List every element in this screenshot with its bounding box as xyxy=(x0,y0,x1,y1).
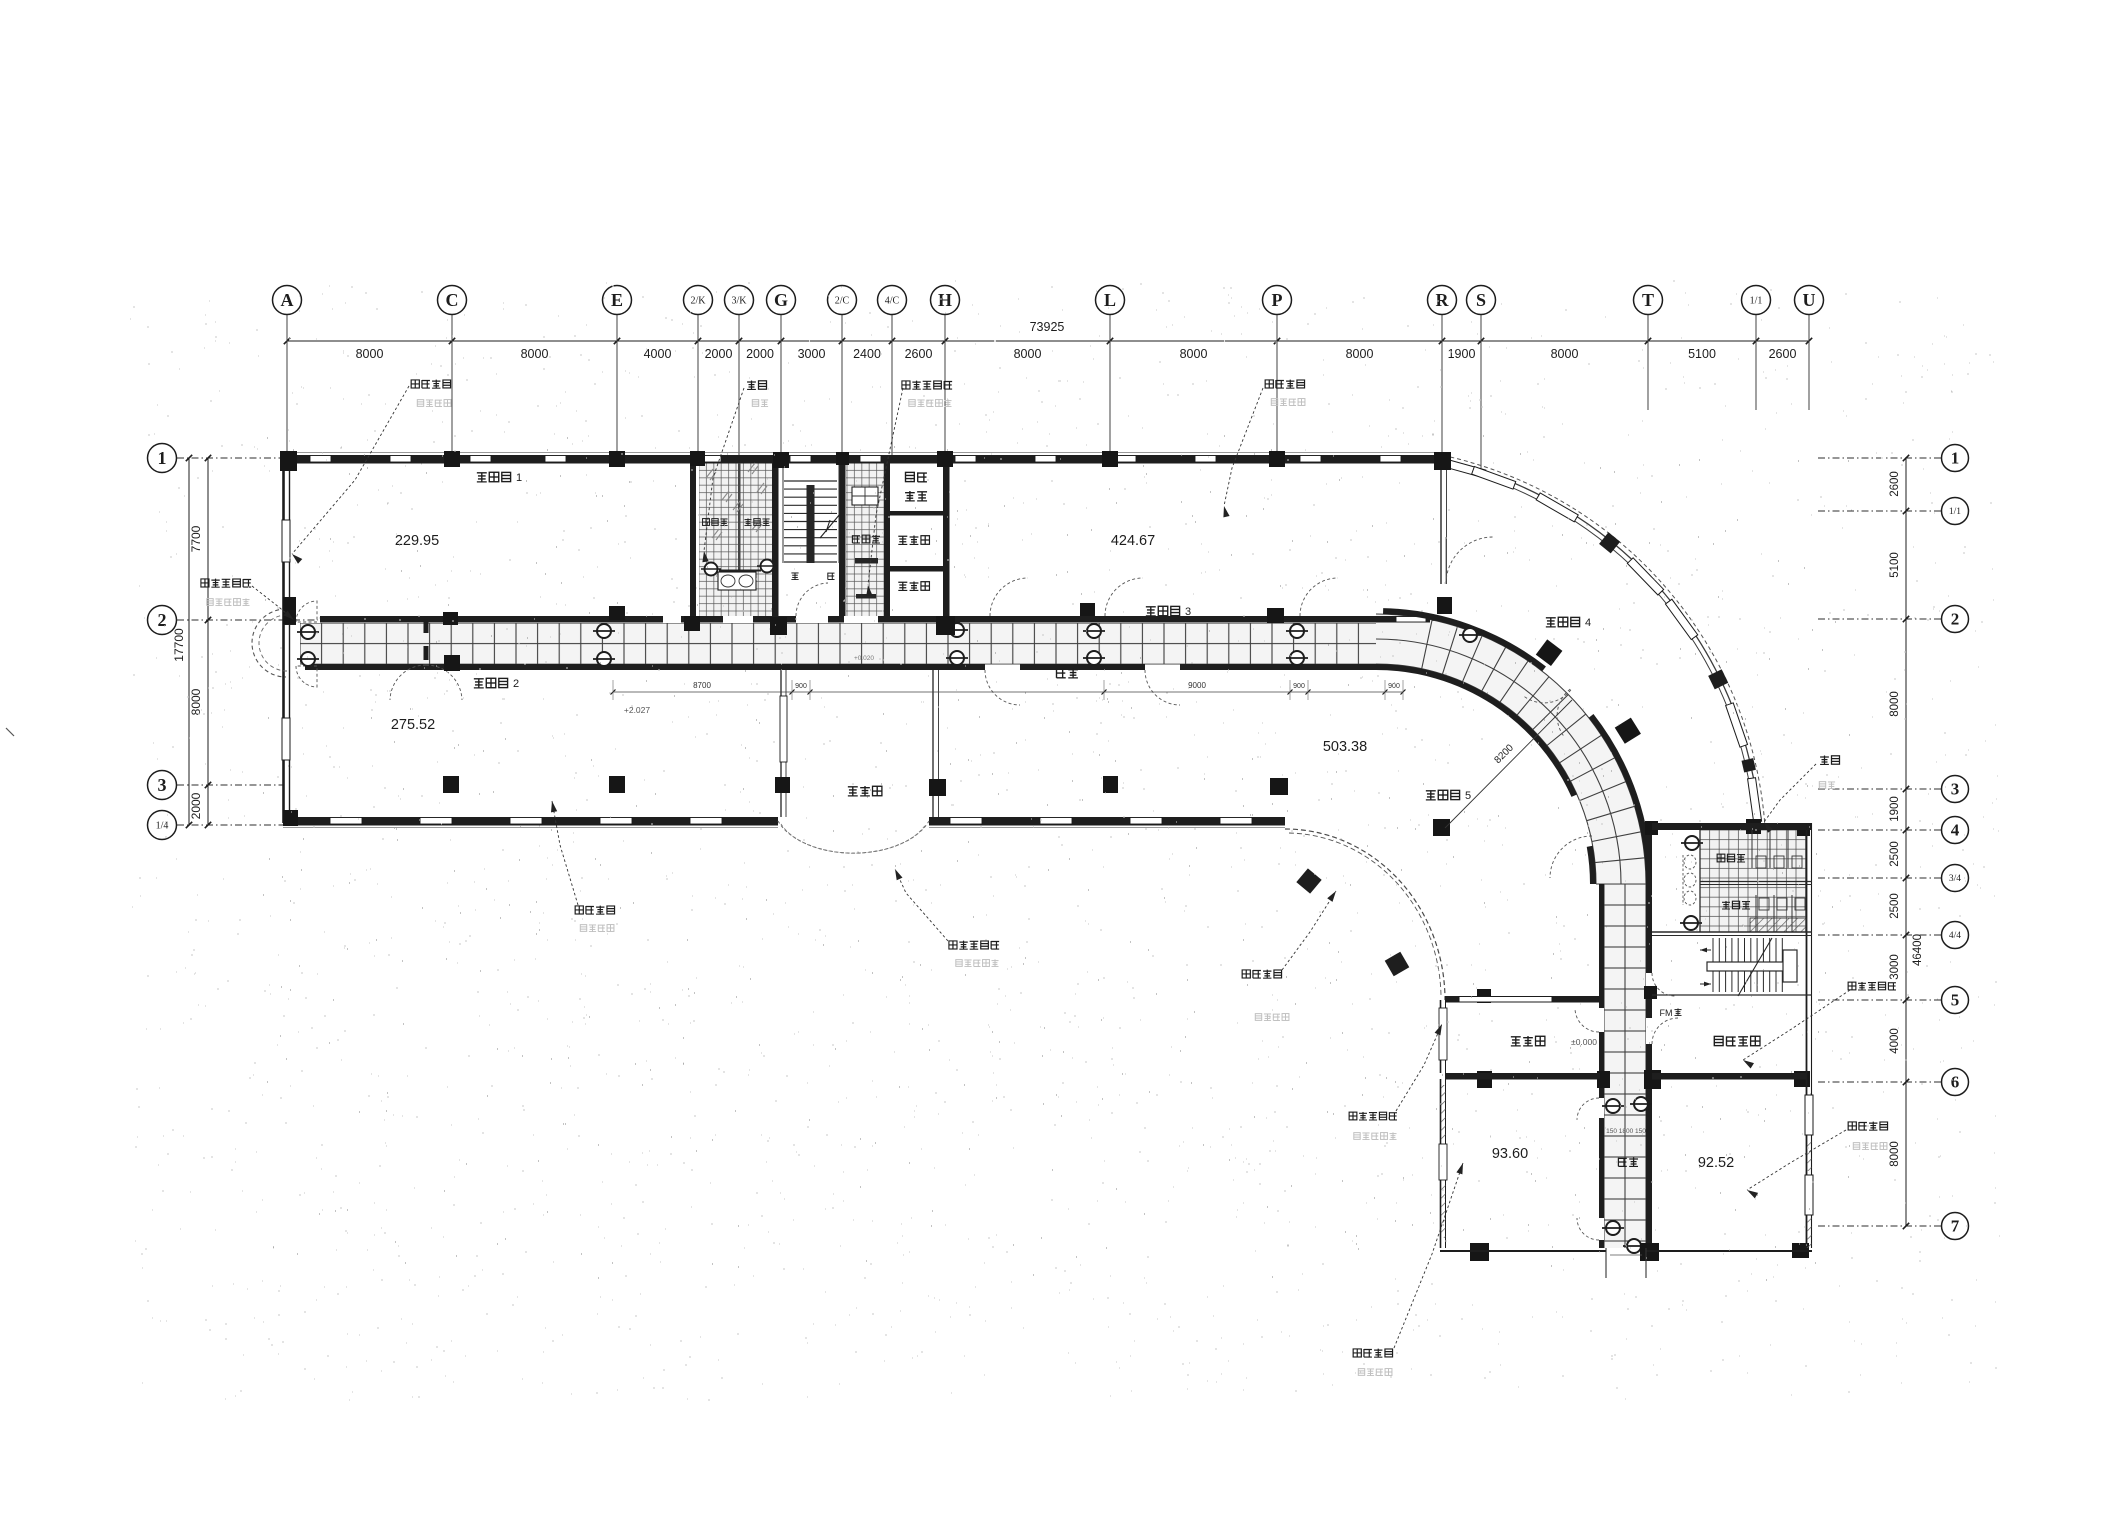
svg-text:4000: 4000 xyxy=(644,347,672,361)
svg-text:1/4: 1/4 xyxy=(156,821,169,832)
svg-text:4: 4 xyxy=(1585,617,1591,629)
svg-text:3000: 3000 xyxy=(798,347,826,361)
svg-text:2000: 2000 xyxy=(705,347,733,361)
svg-text:8000: 8000 xyxy=(1014,347,1042,361)
svg-text:1/1: 1/1 xyxy=(1949,507,1961,517)
svg-text:8000: 8000 xyxy=(1551,347,1579,361)
svg-text:H: H xyxy=(938,290,952,310)
svg-text:1: 1 xyxy=(158,448,167,468)
svg-text:1900: 1900 xyxy=(1448,347,1476,361)
svg-text:2/C: 2/C xyxy=(835,296,850,307)
svg-text:8000: 8000 xyxy=(521,347,549,361)
svg-text:2600: 2600 xyxy=(1889,471,1901,497)
svg-text:17700: 17700 xyxy=(172,628,186,662)
svg-text:7: 7 xyxy=(1951,1217,1960,1236)
svg-text:46400: 46400 xyxy=(1912,934,1924,966)
svg-text:8000: 8000 xyxy=(189,688,203,715)
svg-text:2: 2 xyxy=(1951,610,1960,629)
svg-text:92.52: 92.52 xyxy=(1698,1155,1734,1171)
svg-text:6: 6 xyxy=(1951,1073,1960,1092)
svg-text:2/K: 2/K xyxy=(691,296,707,307)
svg-text:G: G xyxy=(774,290,788,310)
svg-text:8700: 8700 xyxy=(693,681,711,690)
svg-text:4/4: 4/4 xyxy=(1949,931,1961,941)
svg-text:424.67: 424.67 xyxy=(1111,533,1155,549)
svg-text:229.95: 229.95 xyxy=(395,533,439,549)
svg-text:900: 900 xyxy=(1293,683,1305,690)
svg-text:8000: 8000 xyxy=(1889,691,1901,717)
svg-text:2: 2 xyxy=(158,610,167,630)
svg-text:3: 3 xyxy=(1185,606,1191,618)
svg-text:T: T xyxy=(1642,290,1654,310)
svg-text:150 1800 150: 150 1800 150 xyxy=(1606,1128,1646,1135)
svg-text:900: 900 xyxy=(1388,683,1400,690)
svg-text:3: 3 xyxy=(1951,780,1960,799)
svg-text:U: U xyxy=(1803,290,1816,310)
svg-text:2600: 2600 xyxy=(1769,347,1797,361)
svg-text:8000: 8000 xyxy=(1346,347,1374,361)
svg-text:P: P xyxy=(1272,290,1283,310)
svg-text:4: 4 xyxy=(1951,821,1960,840)
svg-text:3/4: 3/4 xyxy=(1949,874,1961,884)
svg-text:FM: FM xyxy=(1660,1008,1673,1018)
svg-text:S: S xyxy=(1476,290,1486,310)
svg-text:A: A xyxy=(281,290,294,310)
svg-text:+2.027: +2.027 xyxy=(624,705,651,715)
svg-text:8000: 8000 xyxy=(356,347,384,361)
svg-text:5100: 5100 xyxy=(1688,347,1716,361)
svg-text:L: L xyxy=(1104,290,1116,310)
svg-text:2400: 2400 xyxy=(853,347,881,361)
svg-text:2: 2 xyxy=(513,678,519,690)
svg-text:±0.000: ±0.000 xyxy=(1571,1037,1597,1047)
svg-text:3/K: 3/K xyxy=(732,296,748,307)
svg-text:5100: 5100 xyxy=(1889,552,1901,578)
svg-text:2500: 2500 xyxy=(1889,841,1901,867)
svg-text:8000: 8000 xyxy=(1889,1141,1901,1167)
svg-text:2600: 2600 xyxy=(905,347,933,361)
svg-text:4/C: 4/C xyxy=(885,296,900,307)
svg-text:5: 5 xyxy=(1951,991,1960,1010)
svg-text:2000: 2000 xyxy=(189,792,203,819)
svg-text:2500: 2500 xyxy=(1889,893,1901,919)
svg-text:275.52: 275.52 xyxy=(391,717,435,733)
svg-text:9000: 9000 xyxy=(1188,681,1206,690)
svg-text:900: 900 xyxy=(795,683,807,690)
svg-text:+0.020: +0.020 xyxy=(854,655,874,662)
svg-text:3: 3 xyxy=(158,775,167,795)
svg-text:R: R xyxy=(1436,290,1450,310)
svg-text:1: 1 xyxy=(516,472,522,484)
svg-text:93.60: 93.60 xyxy=(1492,1146,1528,1162)
svg-text:1/1: 1/1 xyxy=(1750,296,1763,307)
svg-text:C: C xyxy=(446,290,459,310)
svg-text:73925: 73925 xyxy=(1030,320,1065,334)
svg-text:3000: 3000 xyxy=(1889,954,1901,980)
svg-text:5: 5 xyxy=(1465,790,1471,802)
svg-text:1900: 1900 xyxy=(1889,796,1901,822)
svg-text:7700: 7700 xyxy=(189,525,203,552)
svg-text:1: 1 xyxy=(1951,449,1960,468)
svg-text:2000: 2000 xyxy=(746,347,774,361)
svg-text:E: E xyxy=(611,290,623,310)
svg-text:503.38: 503.38 xyxy=(1323,739,1367,755)
svg-text:4000: 4000 xyxy=(1889,1028,1901,1054)
svg-text:8000: 8000 xyxy=(1180,347,1208,361)
